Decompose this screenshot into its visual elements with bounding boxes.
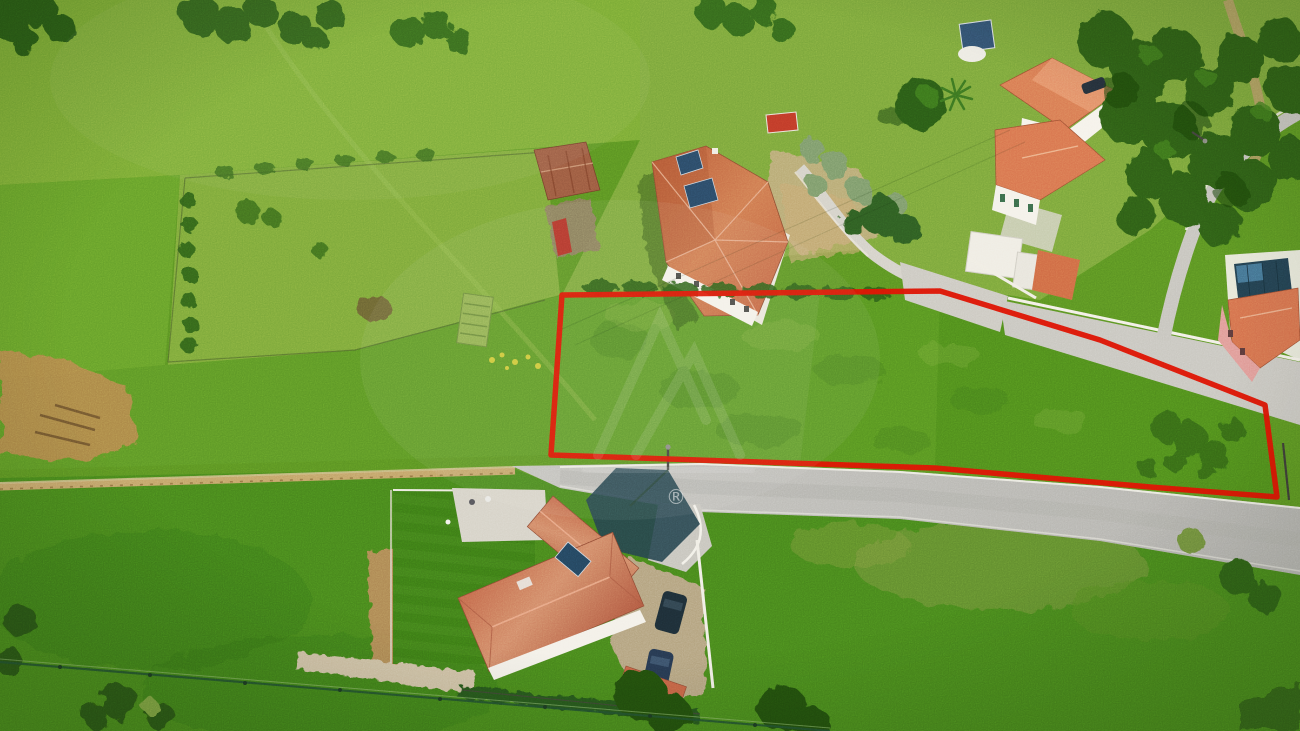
aerial-photo-land-plot: ® xyxy=(0,0,1300,731)
photo-effects xyxy=(0,0,1300,731)
